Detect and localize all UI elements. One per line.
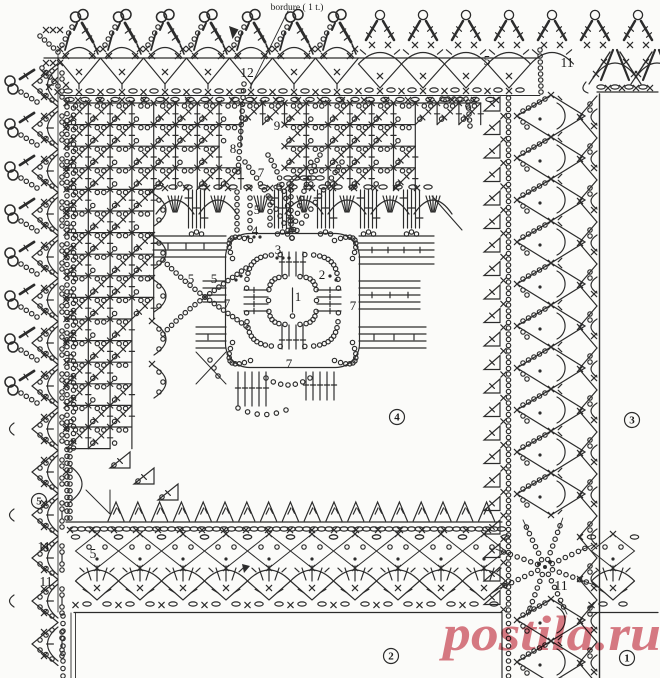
svg-text:3: 3 [275, 242, 282, 257]
svg-text:11: 11 [554, 579, 567, 594]
svg-text:7: 7 [224, 296, 231, 311]
svg-text:8: 8 [230, 141, 237, 156]
svg-text:12: 12 [240, 65, 254, 80]
svg-text:5: 5 [254, 202, 261, 217]
svg-text:7: 7 [286, 356, 293, 371]
svg-text:5: 5 [36, 496, 42, 508]
svg-text:6: 6 [276, 179, 283, 194]
svg-text:2: 2 [319, 267, 326, 282]
svg-text:11: 11 [561, 55, 574, 70]
svg-text:3: 3 [629, 415, 635, 427]
svg-text:5: 5 [188, 271, 195, 286]
svg-text:2: 2 [388, 651, 394, 663]
svg-text:7: 7 [258, 165, 265, 180]
svg-text:9: 9 [274, 118, 281, 133]
svg-text:11: 11 [40, 574, 53, 589]
svg-text:4: 4 [252, 223, 259, 238]
svg-text:11: 11 [38, 539, 51, 554]
svg-text:1: 1 [295, 289, 302, 304]
svg-text:5: 5 [90, 546, 97, 561]
svg-text:7: 7 [350, 298, 357, 313]
svg-text:5: 5 [484, 53, 491, 68]
svg-text:postila.ru: postila.ru [439, 605, 660, 661]
svg-text:4: 4 [394, 412, 400, 424]
svg-text:5: 5 [211, 271, 218, 286]
svg-text:bordure ( 1 t.): bordure ( 1 t.) [271, 2, 324, 13]
